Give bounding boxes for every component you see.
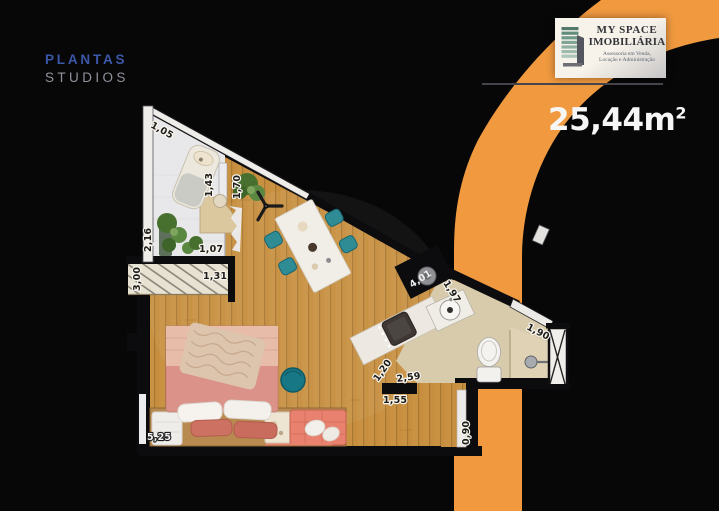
shower-head-icon [525,356,537,368]
agency-tagline: Locação e Administração [588,57,666,63]
measurement-label: 2,16 [143,228,154,252]
wall-pillar [127,333,138,351]
area-value: 25,44m2 [548,102,678,138]
agency-logo-text: MY SPACE IMOBILIÁRIA Assessoria em Venda… [588,25,666,78]
measurement-label: 5,25 [147,432,171,443]
measurement-label: 1,07 [199,244,223,255]
area-superscript: 2 [675,104,686,123]
toilet-icon [477,338,501,383]
deck-wall-stub [228,256,235,302]
measurement-label: 3,00 [132,267,143,291]
bed-pillows [177,400,277,439]
page: 1,05 1,43 1,70 2,16 1,07 3,00 1,31 5,25 … [0,0,719,511]
title-studios: STUDIOS [45,70,129,85]
bottom-wall [139,446,482,456]
measurement-label: 1,31 [203,271,227,282]
measurement-label: 1,43 [204,173,215,197]
measurement-label: 1,55 [383,395,407,406]
agency-name: MY SPACE [588,25,666,36]
measurement-label: 1,70 [232,175,243,199]
agency-logo: MY SPACE IMOBILIÁRIA Assessoria em Venda… [555,18,666,78]
page-title: PLANTAS STUDIOS [45,52,129,85]
basin-drain [447,307,453,313]
title-plantas: PLANTAS [45,52,129,67]
deck-top-wall [126,256,232,265]
agency-name: IMOBILIÁRIA [588,36,666,48]
left-door [139,394,146,444]
building-icon [560,23,586,69]
area-number: 25,44m [548,102,675,138]
measurement-label: 0,90 [461,421,472,445]
divider-line [482,83,663,85]
side-table [214,195,227,208]
